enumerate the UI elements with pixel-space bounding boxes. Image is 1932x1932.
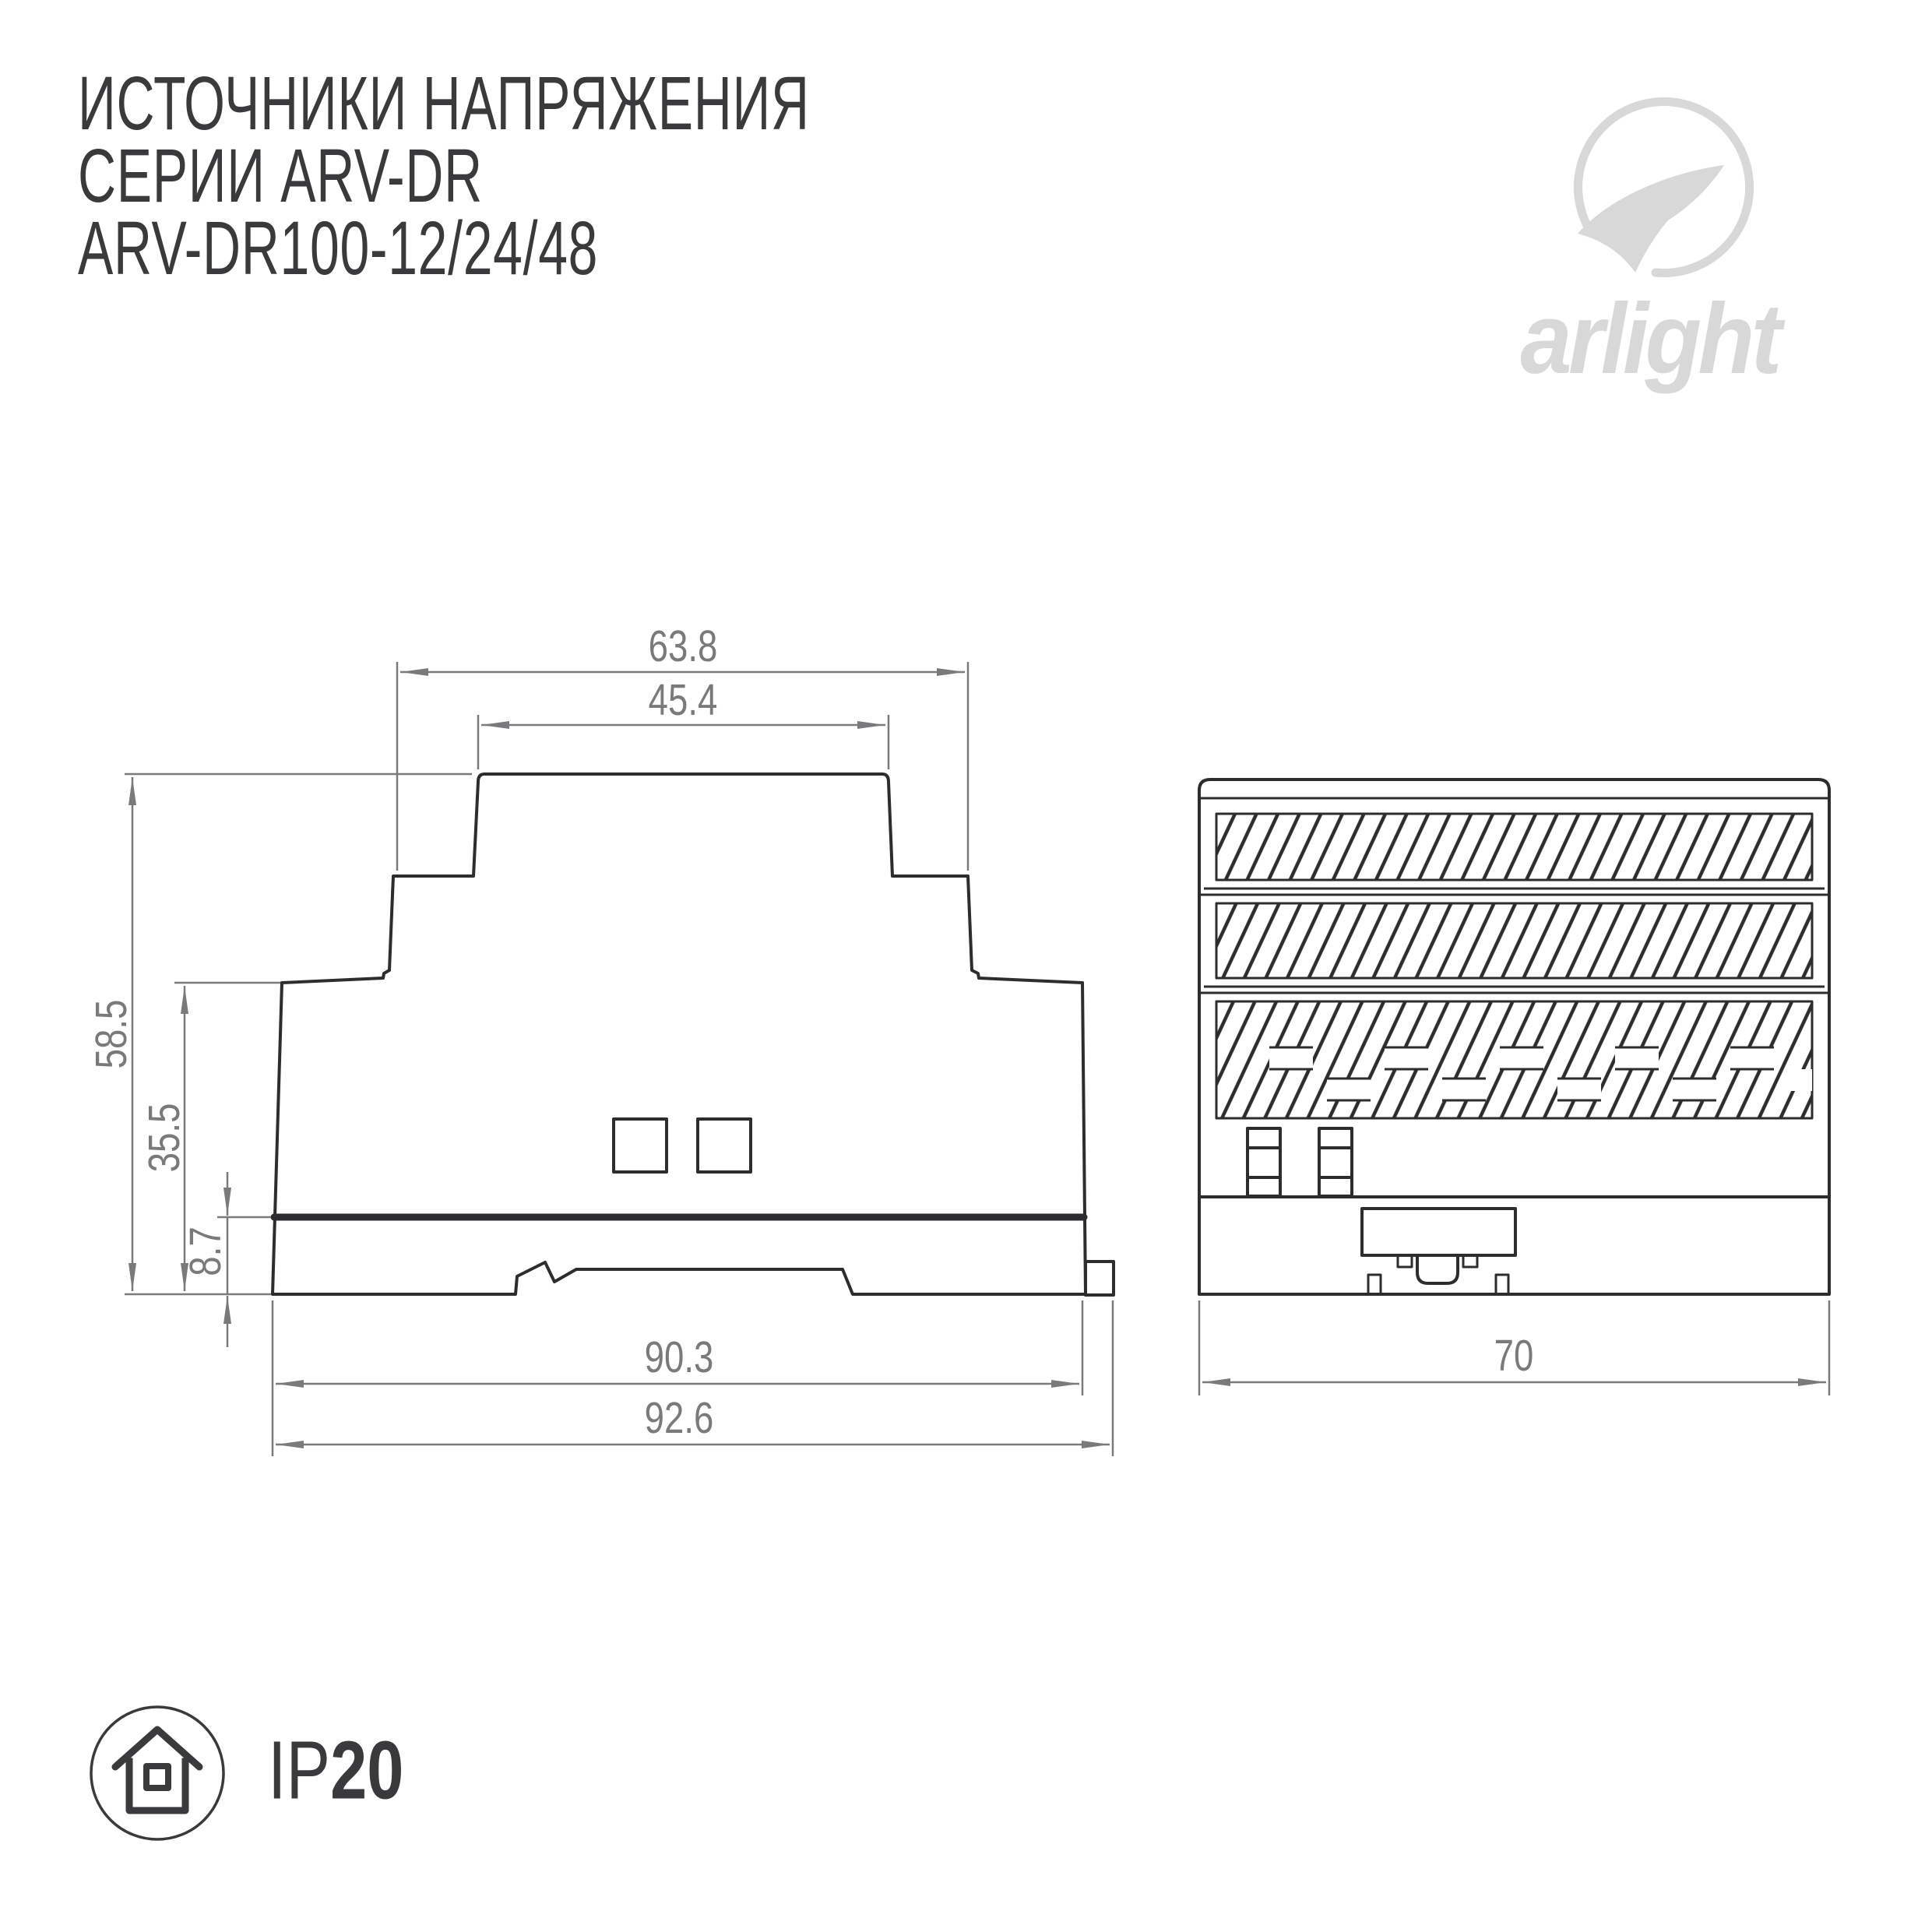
ip20-house-icon	[91, 1707, 223, 1839]
title-line-3: ARV-DR100-12/24/48	[78, 212, 810, 284]
dim-height-body: 35.5	[139, 1103, 190, 1173]
front-view-drawing	[1199, 779, 1829, 1294]
datasheet-page: ИСТОЧНИКИ НАПРЯЖЕНИЯ СЕРИИ ARV-DR ARV-DR…	[0, 0, 1932, 1932]
dim-width-body: 90.3	[645, 1332, 714, 1383]
page-title: ИСТОЧНИКИ НАПРЯЖЕНИЯ СЕРИИ ARV-DR ARV-DR…	[78, 67, 1123, 284]
title-line-1: ИСТОЧНИКИ НАПРЯЖЕНИЯ	[78, 67, 810, 139]
dim-height-total: 58.5	[86, 1000, 137, 1069]
dim-front-width: 70	[1494, 1330, 1534, 1381]
ip-rating-prefix: IP	[268, 1725, 330, 1817]
dim-width-total: 92.6	[645, 1392, 714, 1444]
dim-top-outer-width: 63.8	[649, 621, 718, 672]
arlight-logo-wordmark: arlight	[1461, 282, 1838, 396]
side-view-drawing	[273, 774, 1114, 1295]
arlight-logo-icon	[1578, 102, 1750, 273]
dim-height-base: 8.7	[180, 1226, 231, 1276]
title-line-2: СЕРИИ ARV-DR	[78, 139, 810, 212]
dim-top-inner-width: 45.4	[649, 674, 718, 726]
ip-rating: IP20	[268, 1724, 438, 1818]
ip-rating-value: 20	[330, 1725, 403, 1817]
